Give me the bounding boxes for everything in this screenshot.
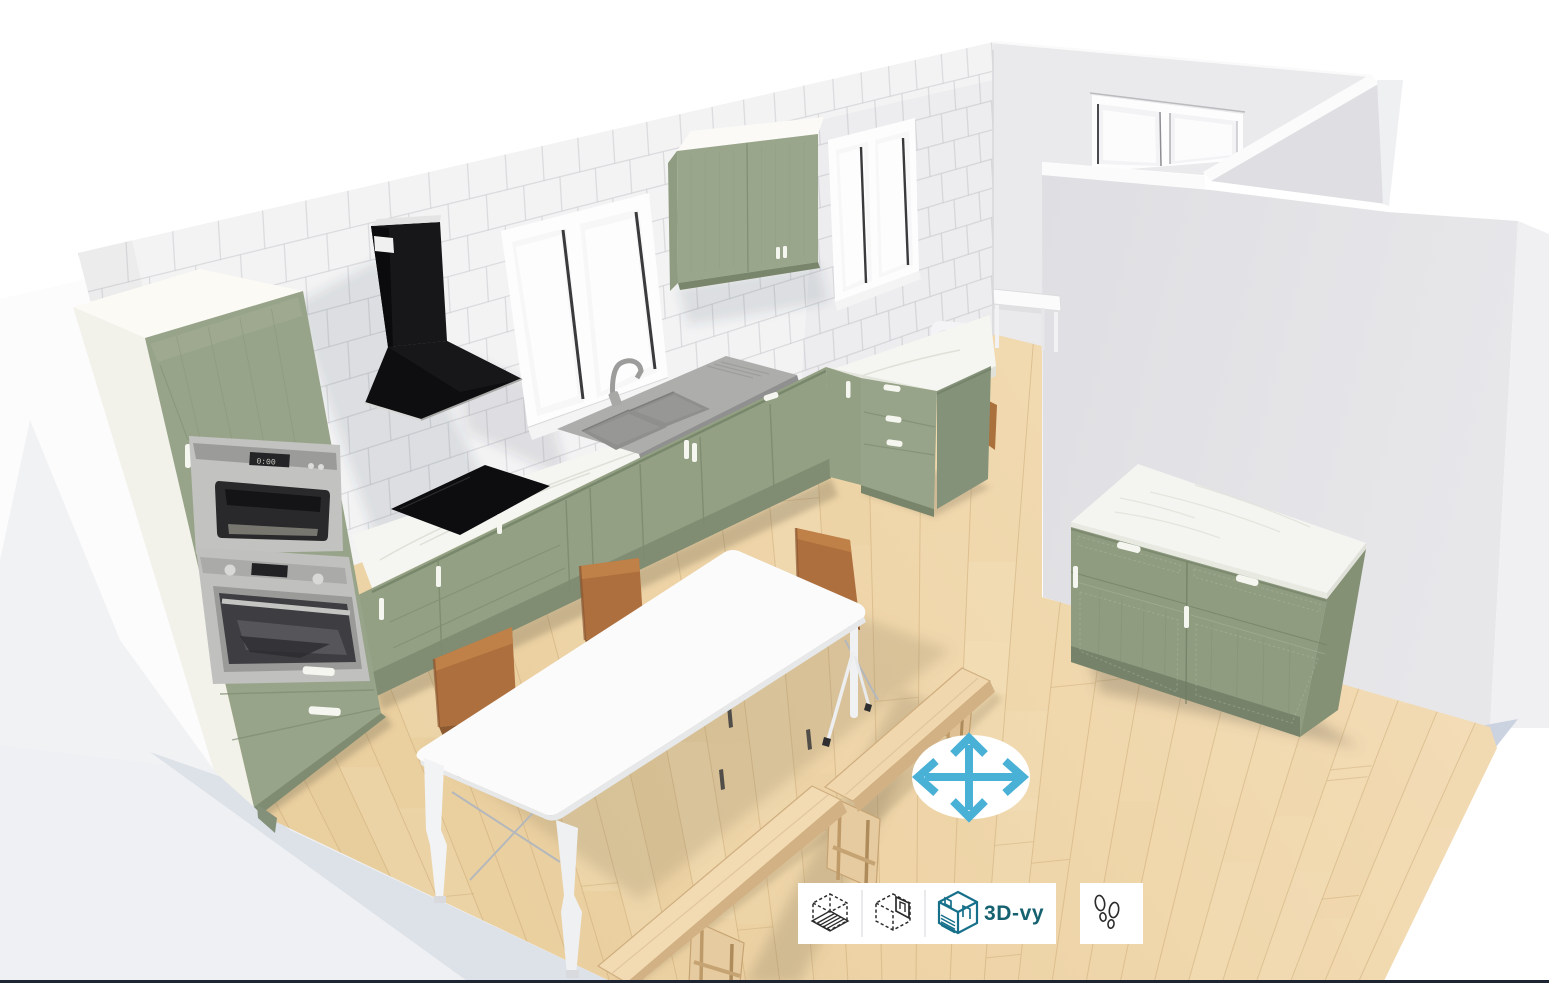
svg-text:0:00: 0:00: [256, 457, 276, 467]
svg-text:3D-vy: 3D-vy: [984, 902, 1044, 925]
